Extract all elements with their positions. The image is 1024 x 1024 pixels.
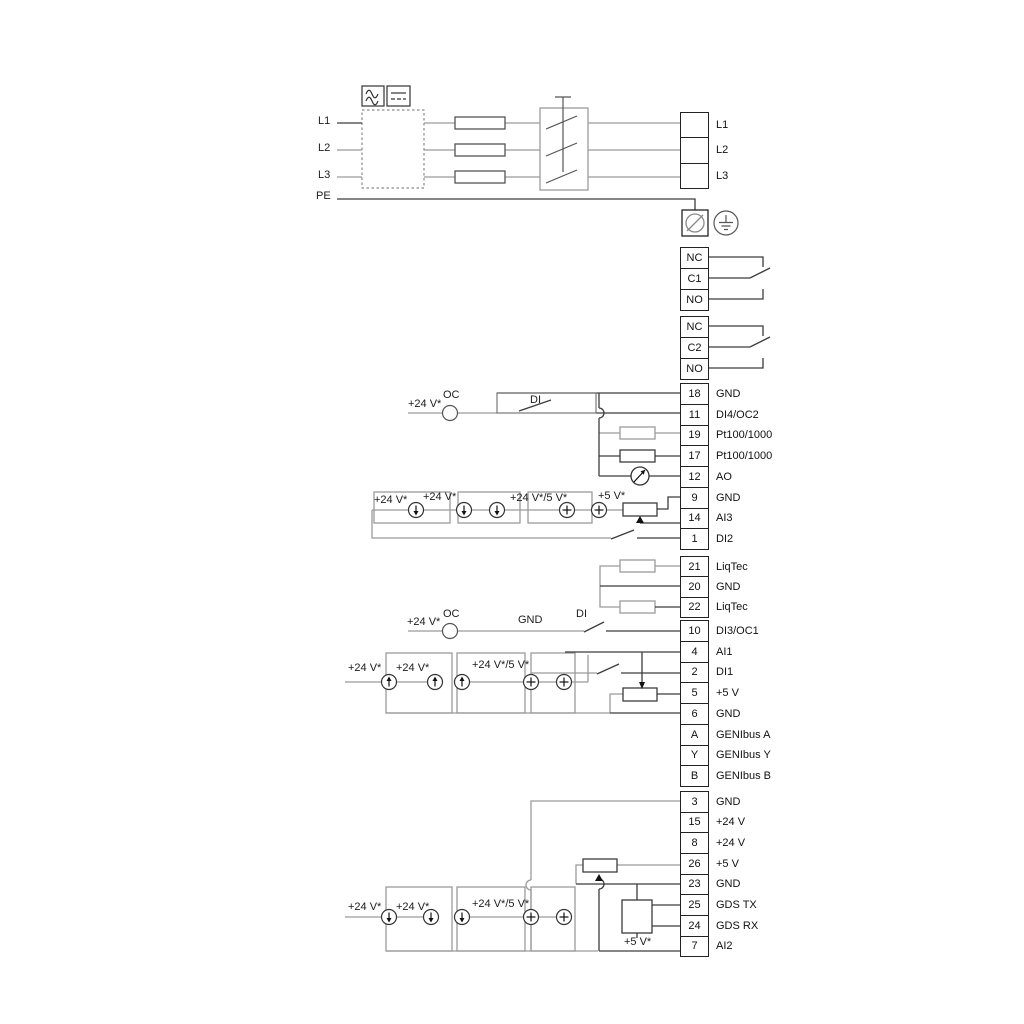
- terminal-label-GND: GND: [716, 791, 740, 813]
- terminal-cell-3: 3: [680, 791, 709, 813]
- terminal-cell-24: 24: [680, 915, 709, 937]
- relay2-contact: [709, 326, 770, 368]
- phase-label-l3: L3: [318, 170, 330, 181]
- di-label: DI: [576, 609, 587, 620]
- potentiometer-ai2: [583, 859, 617, 872]
- terminal-label-GND: GND: [716, 383, 740, 405]
- terminal-cell-L3: [680, 163, 709, 189]
- gray-wires: [337, 108, 681, 951]
- terminal-label-AI1: AI1: [716, 641, 733, 663]
- terminal-cell-6: 6: [680, 703, 709, 725]
- ground-icon: [714, 211, 738, 235]
- wiring-diagram: L1 L2 L3 PE +24 V* OC DI +24 V* +24 V* +…: [0, 0, 1024, 1024]
- resistor-liqtec-21: [620, 560, 655, 572]
- terminal-cell-17: 17: [680, 445, 709, 467]
- pe-terminals: [682, 210, 738, 236]
- terminal-label-GENIbus A: GENIbus A: [716, 724, 770, 746]
- terminal-cell-1: 1: [680, 528, 709, 550]
- terminal-label-DI3/OC1: DI3/OC1: [716, 620, 759, 642]
- terminal-label-+5 V: +5 V: [716, 853, 739, 875]
- terminal-cell-21: 21: [680, 556, 709, 577]
- phase-label-l2: L2: [318, 143, 330, 154]
- terminal-cell-19: 19: [680, 425, 709, 447]
- pe-wire: [337, 199, 695, 210]
- terminal-label-GENIbus B: GENIbus B: [716, 765, 771, 787]
- voltage-label-24v: +24 V*: [348, 902, 381, 913]
- terminal-label-L3: L3: [716, 163, 728, 189]
- terminal-label-+24 V: +24 V: [716, 832, 745, 854]
- relay1-contact: [709, 257, 770, 299]
- fuse-l3: [455, 171, 505, 183]
- gds-sensor-box: [622, 900, 652, 933]
- terminal-cell-L2: [680, 137, 709, 163]
- terminal-label-GDS RX: GDS RX: [716, 915, 758, 937]
- terminal-cell-9: 9: [680, 487, 709, 509]
- voltage-label-24v-5v: +24 V*/5 V*: [472, 660, 529, 671]
- terminal-label-L1: L1: [716, 112, 728, 138]
- oc-label: OC: [443, 609, 460, 620]
- terminal-label-+5 V: +5 V: [716, 682, 739, 704]
- voltage-label-24v: +24 V*: [396, 902, 429, 913]
- terminal-cell-C1: C1: [680, 268, 709, 290]
- terminal-label-AO: AO: [716, 466, 732, 488]
- terminal-cell-14: 14: [680, 508, 709, 530]
- terminal-label-L2: L2: [716, 137, 728, 163]
- terminal-cell-Y: Y: [680, 745, 709, 767]
- terminal-cell-11: 11: [680, 404, 709, 426]
- dc-lines-icon: [387, 86, 410, 106]
- terminal-label-LiqTec: LiqTec: [716, 556, 748, 577]
- potentiometer-ai1: [623, 688, 657, 701]
- terminal-cell-20: 20: [680, 576, 709, 597]
- terminal-label-GND: GND: [716, 487, 740, 509]
- terminal-cell-NO: NO: [680, 358, 709, 380]
- di-input-box: [497, 393, 596, 413]
- terminal-cell-12: 12: [680, 466, 709, 488]
- terminal-cell-A: A: [680, 724, 709, 746]
- converter-symbols: [362, 86, 410, 106]
- terminal-cell-26: 26: [680, 853, 709, 875]
- terminal-cell-7: 7: [680, 936, 709, 958]
- terminal-label-DI4/OC2: DI4/OC2: [716, 404, 759, 426]
- terminal-label-LiqTec: LiqTec: [716, 597, 748, 618]
- voltage-label-24v-5v: +24 V*/5 V*: [510, 493, 567, 504]
- resistor-pt100-17: [620, 450, 655, 462]
- voltage-label-24v: +24 V*: [396, 663, 429, 674]
- voltage-label-5v: +5 V*: [598, 491, 625, 502]
- voltage-label-5v: +5 V*: [624, 937, 651, 948]
- terminal-cell-C2: C2: [680, 337, 709, 359]
- terminal-label-DI1: DI1: [716, 662, 733, 684]
- fuse-l1: [455, 117, 505, 129]
- terminal-label-GND: GND: [716, 874, 740, 896]
- voltage-label-24v: +24 V*: [348, 663, 381, 674]
- filter-dashed-box: [362, 110, 424, 188]
- voltage-label-24v-5v: +24 V*/5 V*: [472, 899, 529, 910]
- terminal-cell-NO: NO: [680, 289, 709, 311]
- terminal-cell-22: 22: [680, 597, 709, 618]
- terminal-cell-5: 5: [680, 682, 709, 704]
- voltage-label-24v: +24 V*: [423, 492, 456, 503]
- potentiometer-ai3: [623, 503, 657, 516]
- terminal-cell-23: 23: [680, 874, 709, 896]
- terminal-cell-8: 8: [680, 832, 709, 854]
- main-switch-blades: [546, 97, 577, 183]
- terminal-label-AI2: AI2: [716, 936, 733, 958]
- terminal-label-GND: GND: [716, 703, 740, 725]
- terminal-label-DI2: DI2: [716, 528, 733, 550]
- fuse-l2: [455, 144, 505, 156]
- terminal-label-GENIbus Y: GENIbus Y: [716, 745, 771, 767]
- wiring-diagram-canvas: [0, 0, 1024, 1024]
- terminal-cell-NC: NC: [680, 316, 709, 338]
- phase-label-pe: PE: [316, 191, 331, 202]
- gnd-label: GND: [518, 615, 542, 626]
- oc-label: OC: [443, 390, 460, 401]
- phase-label-l1: L1: [318, 116, 330, 127]
- terminal-cell-L1: [680, 112, 709, 138]
- di-label: DI: [530, 395, 541, 406]
- terminal-label-GND: GND: [716, 576, 740, 597]
- terminal-label-GDS TX: GDS TX: [716, 894, 757, 916]
- voltage-label-24v: +24 V*: [408, 399, 441, 410]
- voltage-label-24v: +24 V*: [407, 617, 440, 628]
- terminal-cell-18: 18: [680, 383, 709, 405]
- terminal-label-AI3: AI3: [716, 508, 733, 530]
- terminal-label-Pt100/1000: Pt100/1000: [716, 445, 772, 467]
- terminal-cell-4: 4: [680, 641, 709, 663]
- terminal-label-Pt100/1000: Pt100/1000: [716, 425, 772, 447]
- terminal-cell-B: B: [680, 765, 709, 787]
- terminal-label-+24 V: +24 V: [716, 812, 745, 834]
- terminal-cell-25: 25: [680, 894, 709, 916]
- resistor-liqtec-22: [620, 601, 655, 613]
- resistor-pt100-19: [620, 427, 655, 439]
- terminal-cell-10: 10: [680, 620, 709, 642]
- fuses: [455, 117, 505, 183]
- analog-output-meter-icon: [631, 467, 649, 485]
- terminal-cell-2: 2: [680, 662, 709, 684]
- voltage-label-24v: +24 V*: [374, 495, 407, 506]
- terminal-cell-NC: NC: [680, 247, 709, 269]
- terminal-cell-15: 15: [680, 812, 709, 834]
